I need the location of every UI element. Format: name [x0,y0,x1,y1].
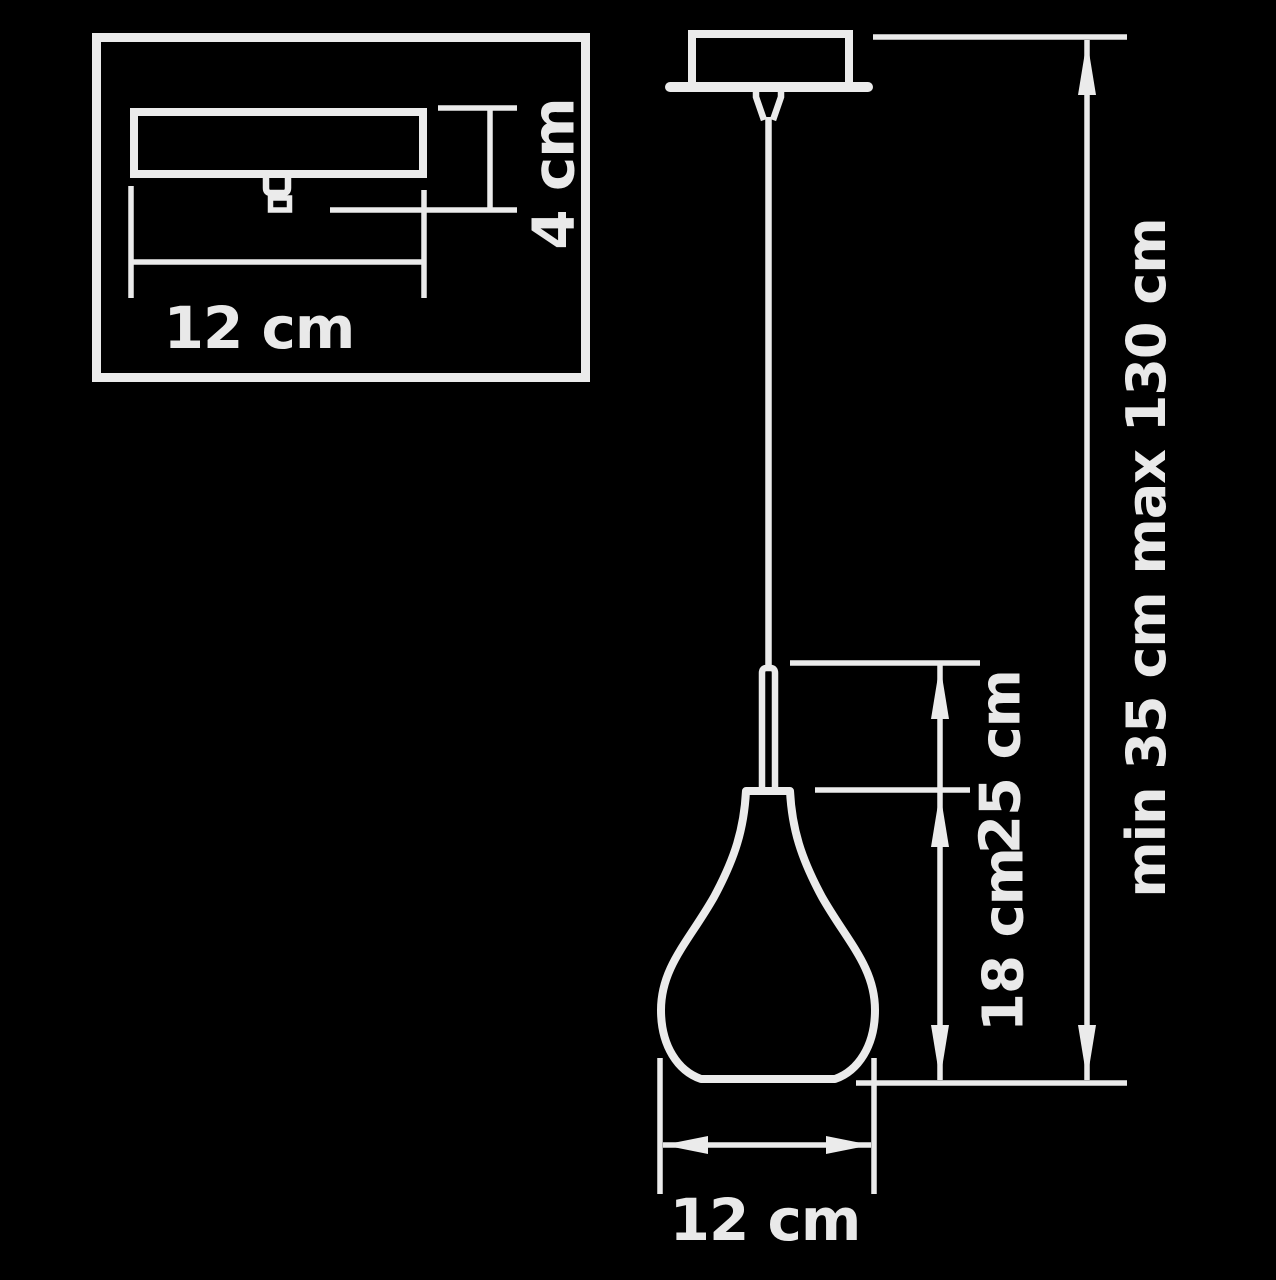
arrow-up [931,792,949,847]
inset-width-label: 12 cm [164,294,355,362]
shade-width-dimension: 12 cm [660,1058,874,1254]
inset-height-label: 4 cm [519,98,587,249]
ceiling-canopy [692,34,849,87]
arrow-up [1078,40,1096,95]
canopy-front-view [134,112,423,174]
suspension-range-label: min 35 cm max 130 cm [1115,218,1178,897]
arrow-up [931,664,949,719]
canopy-detail-inset: 12 cm 4 cm [97,38,588,378]
shade-width-label: 12 cm [670,1186,861,1254]
arrow-down [931,1025,949,1080]
canopy-connector-ring [271,198,290,210]
shade-stem [762,668,775,790]
pendant-lamp-dimension-diagram: 12 cm 4 cm min 35 cm max 130 cm [0,0,1276,1280]
canopy-connector-bracket [266,176,288,193]
strain-relief-left [756,92,764,120]
arrow-down [1078,1025,1096,1080]
arrow-left [663,1136,708,1154]
arrow-right [826,1136,871,1154]
body-and-shade-height-dimensions: 25 cm 18 cm [790,663,1037,1080]
strain-relief-right [773,92,781,120]
lamp-shade [661,791,875,1079]
diagram-canvas: 12 cm 4 cm min 35 cm max 130 cm [0,0,1276,1280]
body-height-label: 25 cm [969,670,1034,854]
pendant-lamp-figure [661,34,875,1079]
canopy-flange [665,82,873,92]
shade-height-label: 18 cm [972,848,1037,1032]
